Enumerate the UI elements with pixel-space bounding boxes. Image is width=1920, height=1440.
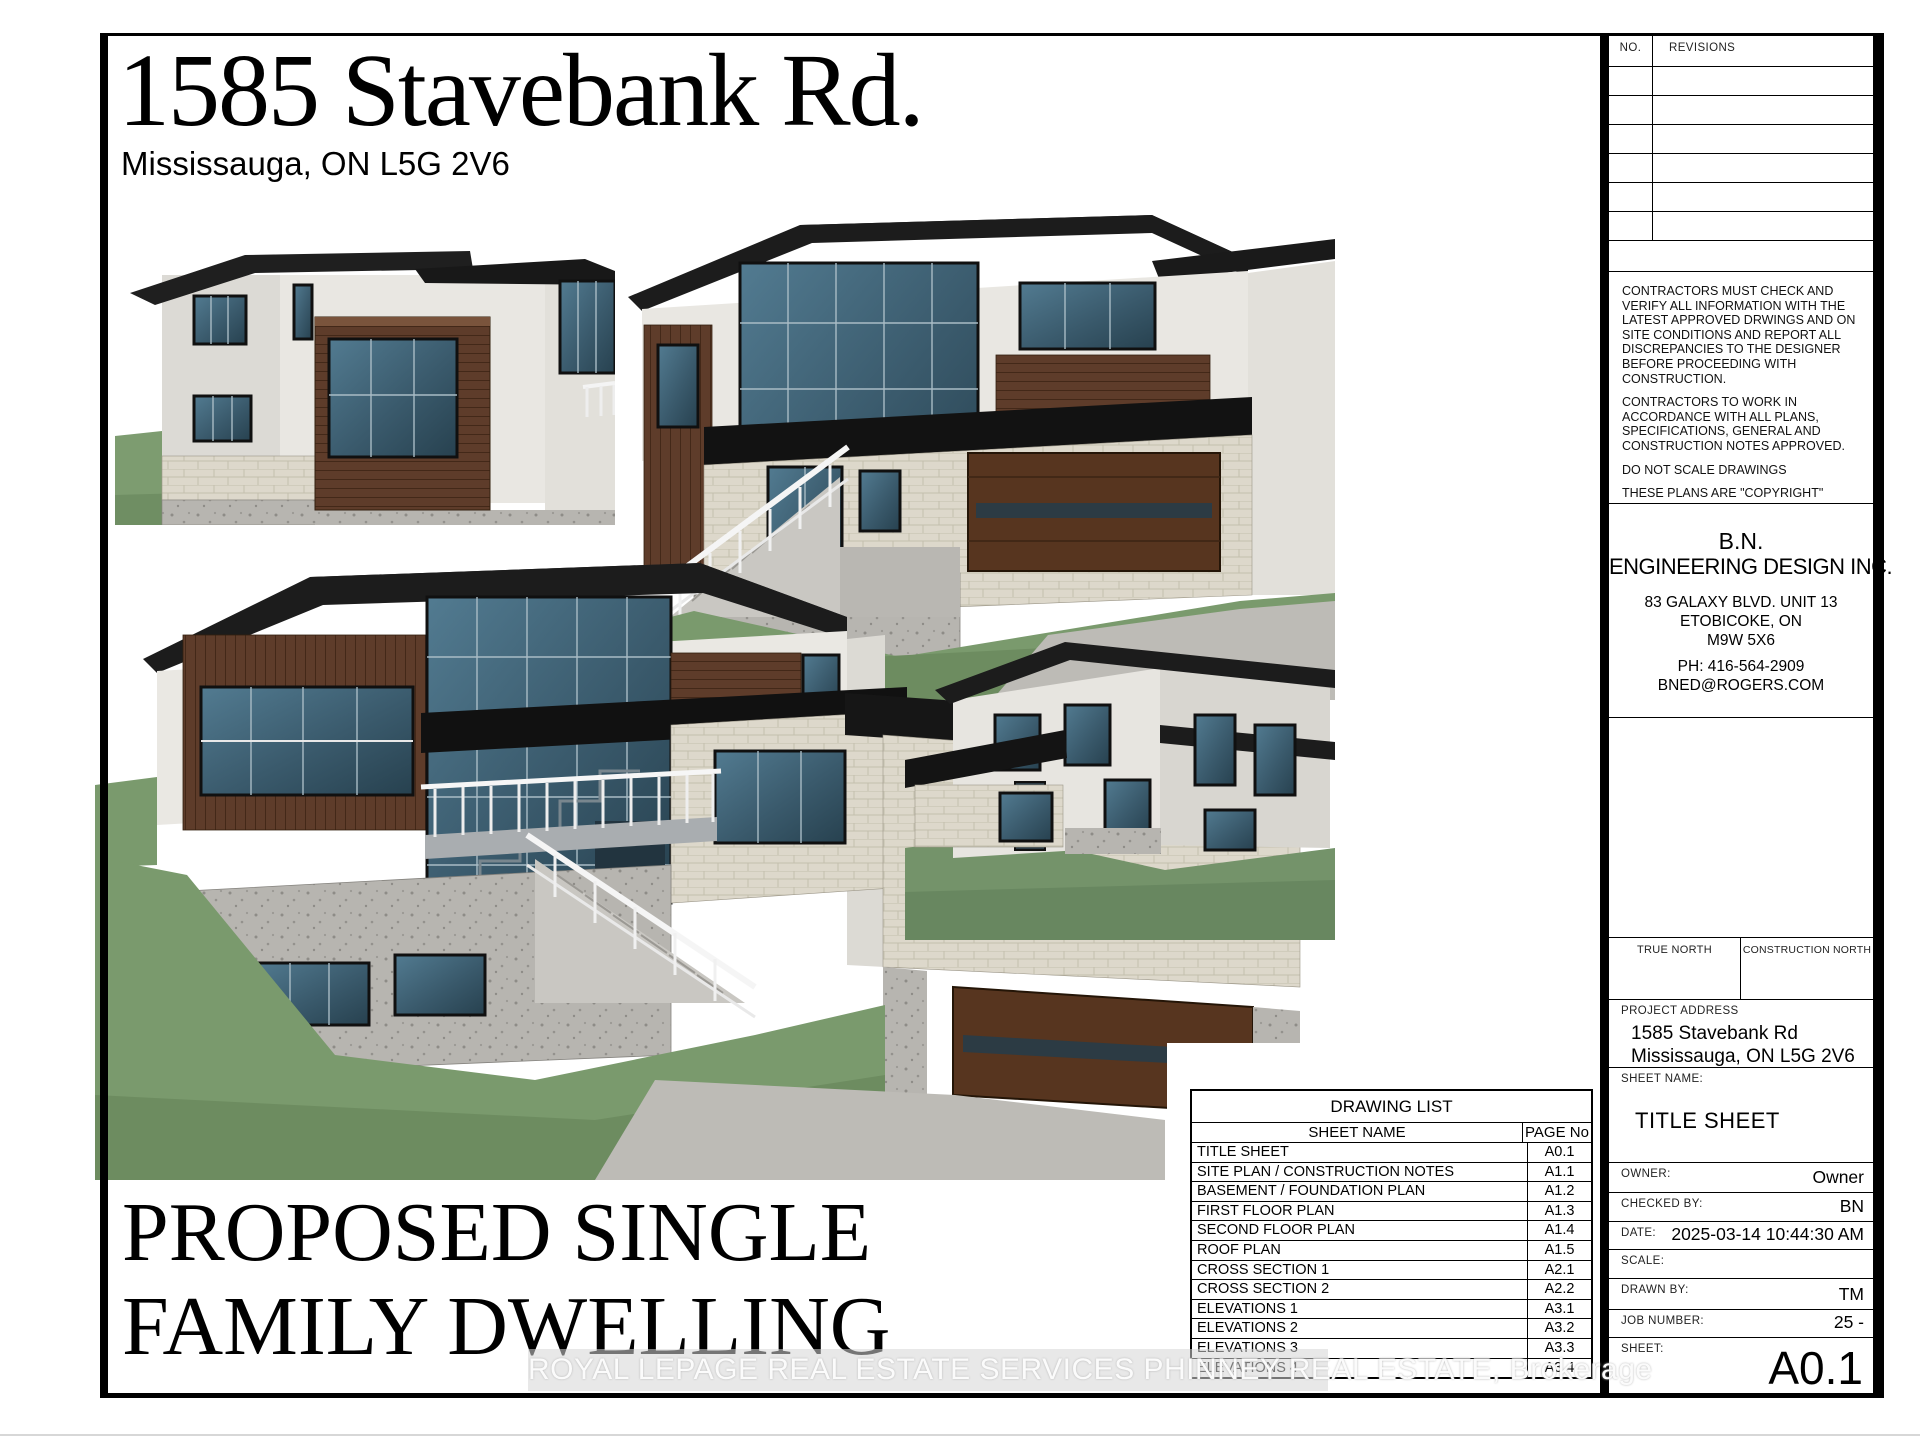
scan-edge-line [0,1434,1920,1436]
drawing-list-row: SITE PLAN / CONSTRUCTION NOTESA1.1 [1192,1163,1591,1183]
project-caption: PROPOSED SINGLE FAMILY DWELLING [122,1186,890,1374]
revision-row [1609,212,1873,241]
page-title: 1585 Stavebank Rd. [118,36,923,146]
revision-desc-cell [1653,67,1873,95]
note-paragraph: THESE PLANS ARE "COPYRIGHT" PROTECTED AN… [1622,486,1863,504]
brokerage-watermark: ROYAL LEPAGE REAL ESTATE SERVICES PHINNE… [528,1349,1328,1391]
drawn-by-value: TM [1839,1284,1864,1305]
drawn-by-row: DRAWN BY: TM [1609,1279,1873,1310]
project-address-label: PROJECT ADDRESS [1621,1005,1739,1017]
designer-info: B.N. ENGINEERING DESIGN INC. 83 GALAXY B… [1609,504,1873,718]
revision-row [1609,125,1873,154]
sheet-number-value: A0.1 [1768,1344,1863,1392]
drawing-list-row: SECOND FLOOR PLANA1.4 [1192,1221,1591,1241]
firm-phone: PH: 416-564-2909 [1609,657,1873,676]
job-number-row: JOB NUMBER: 25 - [1609,1310,1873,1338]
revisions-header: NO. REVISIONS [1609,33,1873,67]
caption-line-1: PROPOSED SINGLE [122,1186,890,1280]
date-row: DATE: 2025-03-14 10:44:30 AM [1609,1222,1873,1250]
drawn-by-label: DRAWN BY: [1621,1284,1689,1296]
revision-no-cell [1609,212,1653,240]
page-no-cell: A1.4 [1528,1221,1591,1240]
firm-address-line-2: ETOBICOKE, ON [1609,612,1873,631]
page-no-cell: A0.1 [1528,1143,1591,1162]
sheet-name-value: TITLE SHEET [1635,1108,1780,1134]
page-no-cell: A1.3 [1528,1202,1591,1221]
job-number-value: 25 - [1834,1312,1864,1333]
north-arrows: TRUE NORTH CONSTRUCTION NORTH [1609,938,1873,1000]
drawing-list-title: DRAWING LIST [1192,1091,1591,1123]
page-no-cell: A1.5 [1528,1241,1591,1260]
column-page-no: PAGE No [1523,1123,1591,1142]
true-north-label: TRUE NORTH [1609,944,1740,956]
firm-address-line-3: M9W 5X6 [1609,631,1873,650]
revision-no-cell [1609,96,1653,124]
general-notes: CONTRACTORS MUST CHECK AND VERIFY ALL IN… [1609,272,1873,504]
sheet-border-left [100,33,108,1395]
drawing-list-table: DRAWING LIST SHEET NAME PAGE No TITLE SH… [1190,1089,1593,1379]
project-address-line-2: Mississauga, ON L5G 2V6 [1631,1045,1855,1068]
drawing-list-row: CROSS SECTION 2A2.2 [1192,1280,1591,1300]
note-paragraph: CONTRACTORS TO WORK IN ACCORDANCE WITH A… [1622,395,1863,453]
construction-north-label: CONSTRUCTION NORTH [1741,944,1873,956]
drawing-list-header: SHEET NAME PAGE No [1192,1123,1591,1143]
sheet-name-cell: ELEVATIONS 1 [1192,1300,1528,1319]
firm-name-line-2: ENGINEERING DESIGN INC. [1609,554,1873,580]
title-block: NO. REVISIONS CONTRACTORS MUST CHECK AND… [1600,33,1884,1398]
scale-row: SCALE: [1609,1250,1873,1279]
project-address-line-1: 1585 Stavebank Rd [1631,1022,1855,1045]
owner-label: OWNER: [1621,1168,1671,1180]
rendering-rear-right-view [905,630,1335,940]
date-value: 2025-03-14 10:44:30 AM [1671,1224,1864,1245]
page-subtitle: Mississauga, ON L5G 2V6 [121,146,510,182]
revisions-table: NO. REVISIONS [1609,33,1873,272]
sheet-name-cell: FIRST FLOOR PLAN [1192,1202,1528,1221]
drawing-list-row: CROSS SECTION 1A2.1 [1192,1261,1591,1281]
revision-row [1609,154,1873,183]
firm-email: BNED@ROGERS.COM [1609,676,1873,695]
note-paragraph: DO NOT SCALE DRAWINGS [1622,463,1863,478]
revision-row [1609,67,1873,96]
revision-no-cell [1609,183,1653,211]
drawing-list-body: TITLE SHEETA0.1SITE PLAN / CONSTRUCTION … [1192,1143,1591,1377]
drawing-list-row: FIRST FLOOR PLANA1.3 [1192,1202,1591,1222]
revision-no-cell [1609,125,1653,153]
sheet-name-label: SHEET NAME: [1621,1073,1703,1085]
revisions-no-label: NO. [1609,33,1653,66]
page-no-cell: A1.1 [1528,1163,1591,1182]
revision-desc-cell [1653,154,1873,182]
checked-by-label: CHECKED BY: [1621,1198,1703,1210]
sheet-border-top [100,33,1884,36]
drawing-list-row: ELEVATIONS 1A3.1 [1192,1300,1591,1320]
page-no-cell: A2.1 [1528,1261,1591,1280]
sheet-name-cell: BASEMENT / FOUNDATION PLAN [1192,1182,1528,1201]
firm-address-line-1: 83 GALAXY BLVD. UNIT 13 [1609,593,1873,612]
stamp-area [1609,718,1873,938]
job-number-label: JOB NUMBER: [1621,1315,1704,1327]
revisions-spacer [1609,241,1873,274]
revision-desc-cell [1653,212,1873,240]
date-label: DATE: [1621,1227,1656,1239]
sheet-name-cell: SECOND FLOOR PLAN [1192,1221,1528,1240]
revision-desc-cell [1653,125,1873,153]
note-paragraph: CONTRACTORS MUST CHECK AND VERIFY ALL IN… [1622,284,1863,386]
project-address-section: PROJECT ADDRESS 1585 Stavebank Rd Missis… [1609,1000,1873,1068]
column-sheet-name: SHEET NAME [1192,1123,1523,1142]
owner-value: Owner [1812,1167,1864,1188]
revisions-label: REVISIONS [1653,33,1873,66]
revisions-rows [1609,67,1873,241]
revision-row [1609,96,1873,125]
sheet-name-cell: TITLE SHEET [1192,1143,1528,1162]
revision-no-cell [1609,154,1653,182]
checked-by-row: CHECKED BY: BN [1609,1193,1873,1222]
page-no-cell: A1.2 [1528,1182,1591,1201]
page-no-cell: A3.1 [1528,1300,1591,1319]
rendering-rear-left-view [115,245,615,525]
sheet-name-cell: ELEVATIONS 2 [1192,1319,1528,1338]
sheet-name-cell: ROOF PLAN [1192,1241,1528,1260]
page-no-cell: A2.2 [1528,1280,1591,1299]
revision-desc-cell [1653,183,1873,211]
revision-row [1609,183,1873,212]
sheet-name-cell: CROSS SECTION 2 [1192,1280,1528,1299]
sheet-name-cell: SITE PLAN / CONSTRUCTION NOTES [1192,1163,1528,1182]
checked-by-value: BN [1840,1196,1864,1217]
drawing-list-row: ROOF PLANA1.5 [1192,1241,1591,1261]
page-no-cell: A3.2 [1528,1319,1591,1338]
revision-desc-cell [1653,96,1873,124]
sheet-name-cell: CROSS SECTION 1 [1192,1261,1528,1280]
sheet-border-bottom [100,1393,1884,1398]
firm-name-line-1: B.N. [1609,528,1873,554]
owner-row: OWNER: Owner [1609,1163,1873,1193]
drawing-list-row: BASEMENT / FOUNDATION PLANA1.2 [1192,1182,1591,1202]
revision-no-cell [1609,67,1653,95]
sheet-name-section: SHEET NAME: TITLE SHEET [1609,1068,1873,1163]
drawing-list-row: TITLE SHEETA0.1 [1192,1143,1591,1163]
scale-label: SCALE: [1621,1255,1664,1267]
drawing-list-row: ELEVATIONS 2A3.2 [1192,1319,1591,1339]
